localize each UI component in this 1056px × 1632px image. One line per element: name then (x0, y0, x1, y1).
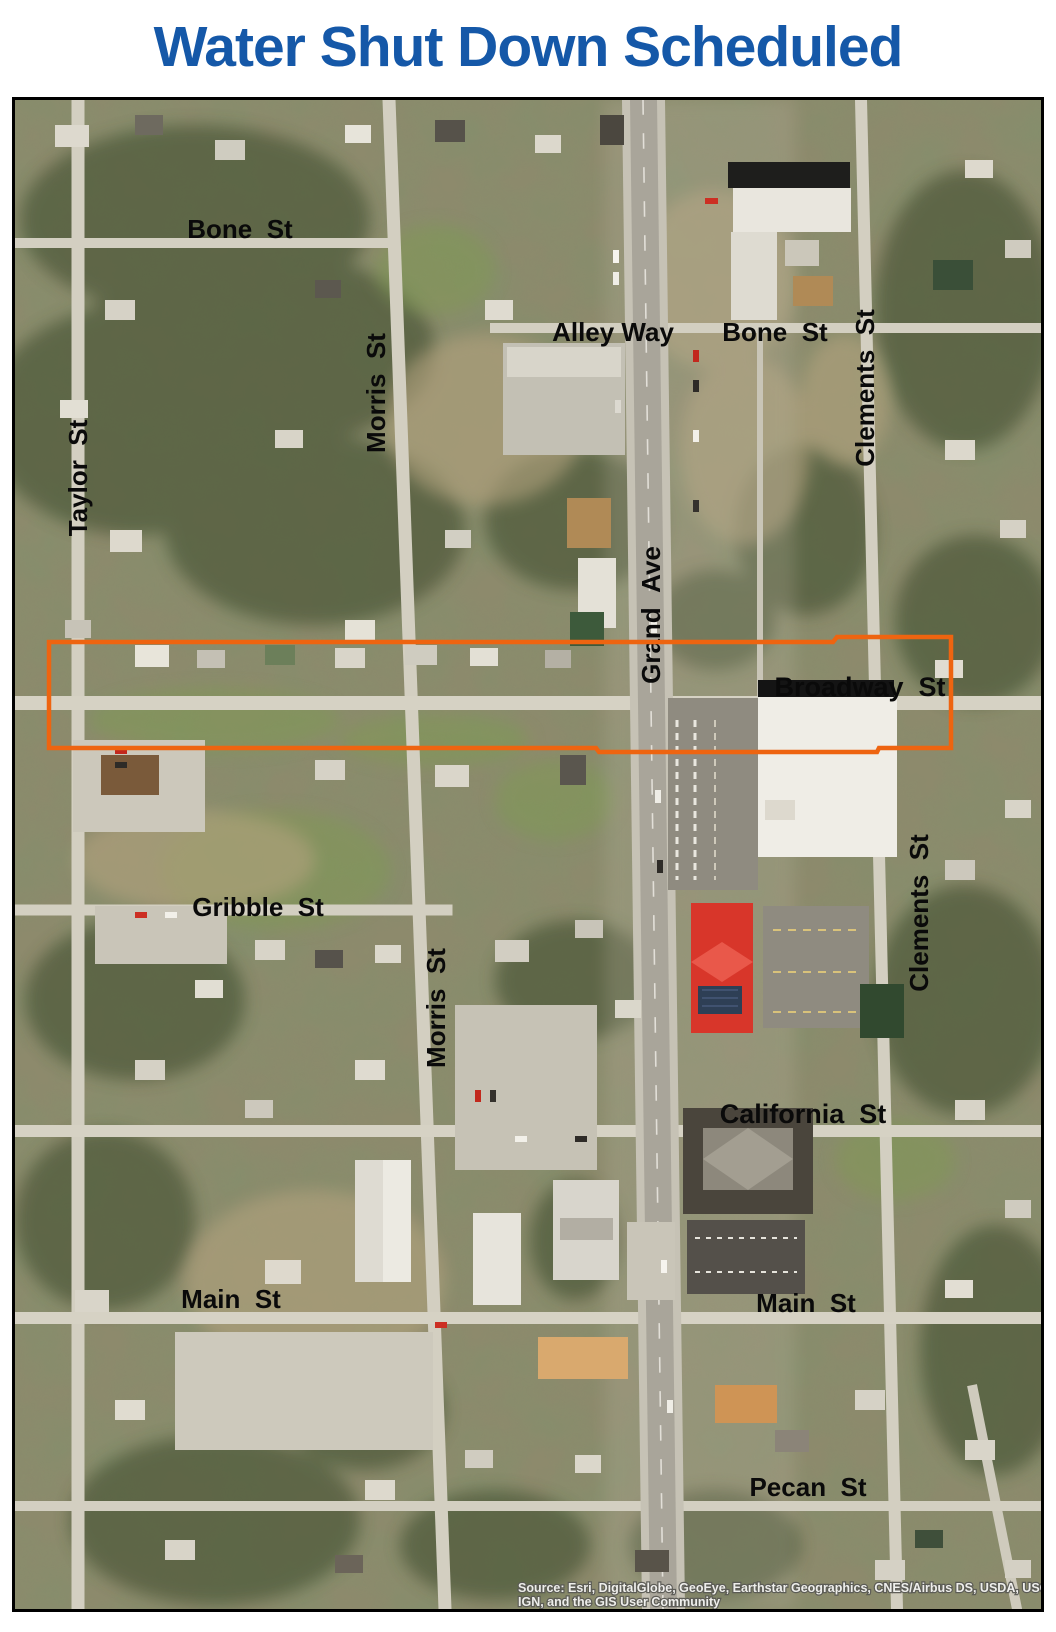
street-label-alley-way: Alley Way (552, 317, 674, 347)
parking-lot-east (763, 906, 869, 1028)
street-label-clements-st-upper: Clements St (850, 309, 880, 467)
aerial-map-canvas: Bone St Alley Way Bone St Clements St Ta… (15, 100, 1041, 1609)
map-attribution-line1: Source: Esri, DigitalGlobe, GeoEye, Eart… (518, 1581, 1041, 1595)
street-label-taylor-st: Taylor St (63, 419, 93, 536)
parking-lot-main (175, 1332, 433, 1450)
page-title: Water Shut Down Scheduled (0, 14, 1056, 80)
street-label-morris-st-lower: Morris St (421, 948, 451, 1068)
parking-lot-center (455, 1005, 597, 1170)
building-tan-south (538, 1337, 628, 1379)
aerial-map: Bone St Alley Way Bone St Clements St Ta… (12, 97, 1044, 1612)
street-label-main-st-left: Main St (181, 1284, 281, 1314)
building-hospital (473, 1213, 521, 1305)
street-label-bone-st-right: Bone St (722, 317, 828, 347)
street-label-clements-st-lower: Clements St (904, 834, 934, 992)
building-courthouse (683, 1108, 813, 1294)
street-label-grand-ave: Grand Ave (636, 546, 666, 684)
building-orange-south (715, 1385, 777, 1423)
building-tan-grand (567, 498, 611, 548)
street-label-gribble-st: Gribble St (192, 892, 324, 922)
street-label-california-st: California St (720, 1099, 887, 1129)
building-green-roof (860, 984, 904, 1038)
map-attribution-line2: IGN, and the GIS User Community (518, 1595, 720, 1609)
street-label-pecan-st: Pecan St (749, 1472, 866, 1502)
street-label-broadway-st: Broadway St (774, 672, 945, 702)
building-brown (101, 755, 159, 795)
street-label-morris-st-upper: Morris St (361, 333, 391, 453)
building-red-roof (691, 903, 753, 1033)
building-warehouse-alleyway (503, 343, 625, 455)
street-label-bone-st-left: Bone St (187, 214, 293, 244)
street-label-main-st-right: Main St (756, 1288, 856, 1318)
